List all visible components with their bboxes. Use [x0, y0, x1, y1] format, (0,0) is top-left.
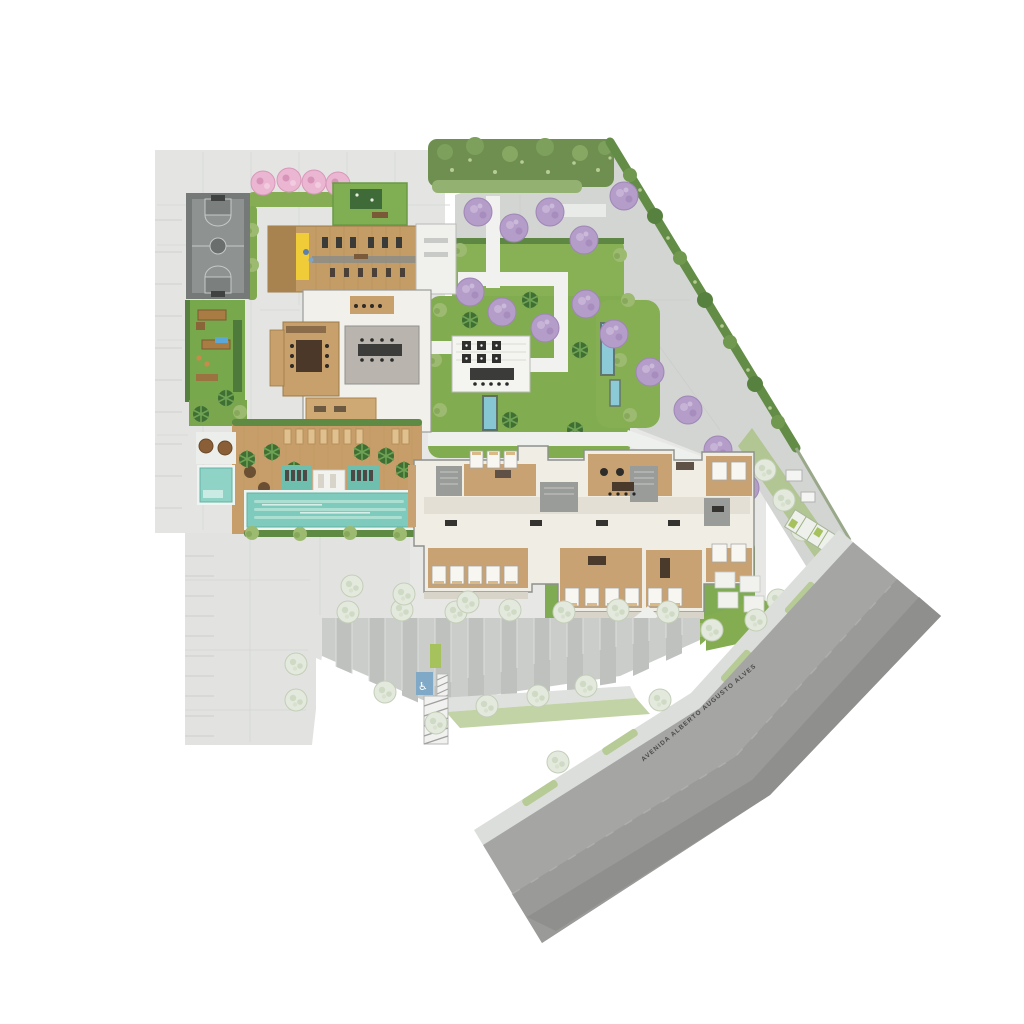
fitness-center: [268, 224, 456, 294]
site-plan-drawing: ♿ AVENIDA ALBERTO AUGUSTO ALVES: [0, 0, 1024, 1024]
basketball-court: [186, 193, 250, 299]
slide: [215, 337, 228, 343]
basketball-hoop-north: [211, 195, 225, 201]
long-table: [358, 344, 402, 356]
dining-table: [296, 340, 322, 372]
residential-building: [408, 446, 754, 619]
corridor: [424, 497, 750, 514]
reflecting-pool: [483, 396, 497, 430]
perimeter-hedge-top: [428, 137, 614, 193]
site-plan-canvas: ♿ AVENIDA ALBERTO AUGUSTO ALVES: [0, 0, 1024, 1024]
lap-pool: [244, 490, 416, 530]
eco-stall: [430, 644, 441, 668]
bbq-counter: [470, 368, 514, 380]
basketball-hoop-south: [211, 291, 225, 297]
playground: [185, 300, 247, 426]
accessible-icon: ♿: [418, 680, 428, 693]
events-lawn: [333, 183, 407, 225]
accessible-stall: ♿: [416, 672, 433, 695]
climbing-wall: [296, 233, 309, 280]
kids-pool: [197, 465, 235, 505]
